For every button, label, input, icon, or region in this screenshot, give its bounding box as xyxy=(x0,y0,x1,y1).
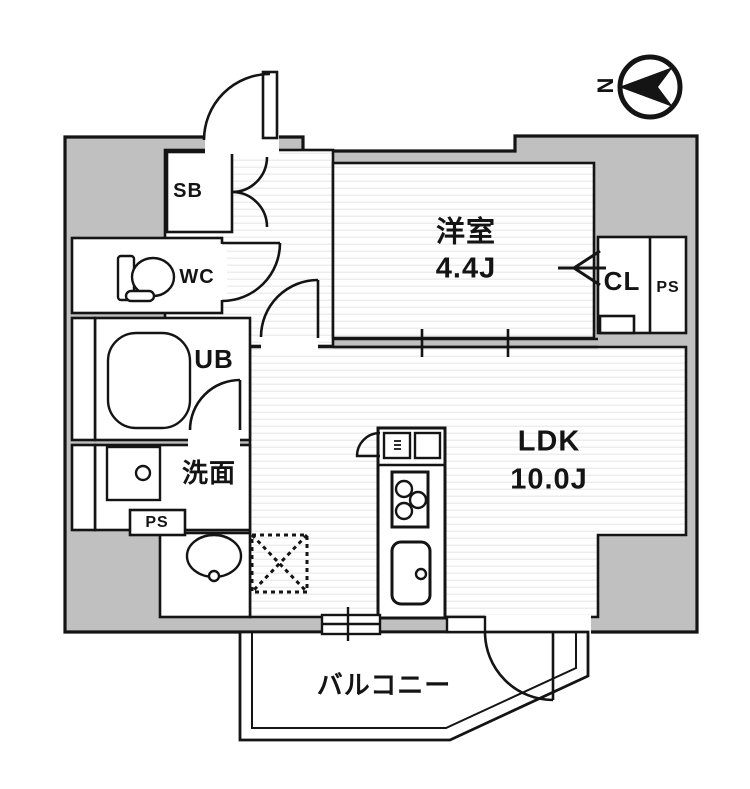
pipe-space-right-label: PS xyxy=(656,280,679,296)
entry-door-leaf xyxy=(263,72,277,138)
ldk-size: 10.0J xyxy=(510,466,588,495)
pipe-space-left-label: PS xyxy=(145,515,168,531)
washroom-label: 洗面 xyxy=(182,460,236,486)
western-room-size: 4.4J xyxy=(436,255,496,284)
western-room-label: 洋室 xyxy=(436,219,496,248)
left-shaft-2 xyxy=(72,445,95,530)
floor-plan-page: 洋室 4.4J LDK 10.0J SB WC UB 洗面 PS CL PS バ… xyxy=(0,0,750,789)
burner-1 xyxy=(396,481,412,497)
ldk-door-opening xyxy=(261,339,318,350)
closet-label: CL xyxy=(604,268,641,294)
fixed-window xyxy=(447,617,485,632)
unit-bath-label: UB xyxy=(194,346,234,372)
wc-door-opening xyxy=(218,244,227,300)
burner-3 xyxy=(396,503,412,519)
north-compass-icon xyxy=(619,57,680,117)
burner-2 xyxy=(410,492,426,508)
sink-drain xyxy=(416,569,426,579)
balcony-label: バルコニー xyxy=(317,672,451,698)
ldk-label: LDK xyxy=(518,428,581,457)
north-label: N xyxy=(595,77,617,94)
left-shaft-1 xyxy=(72,318,95,440)
closet-step xyxy=(600,316,634,333)
wc-label: WC xyxy=(179,267,214,287)
washbasin-icon xyxy=(107,447,160,500)
bathtub-icon xyxy=(108,333,190,428)
ub-door-opening xyxy=(188,437,240,448)
western-room-area xyxy=(333,163,594,338)
shoe-box-label: SB xyxy=(173,181,203,201)
